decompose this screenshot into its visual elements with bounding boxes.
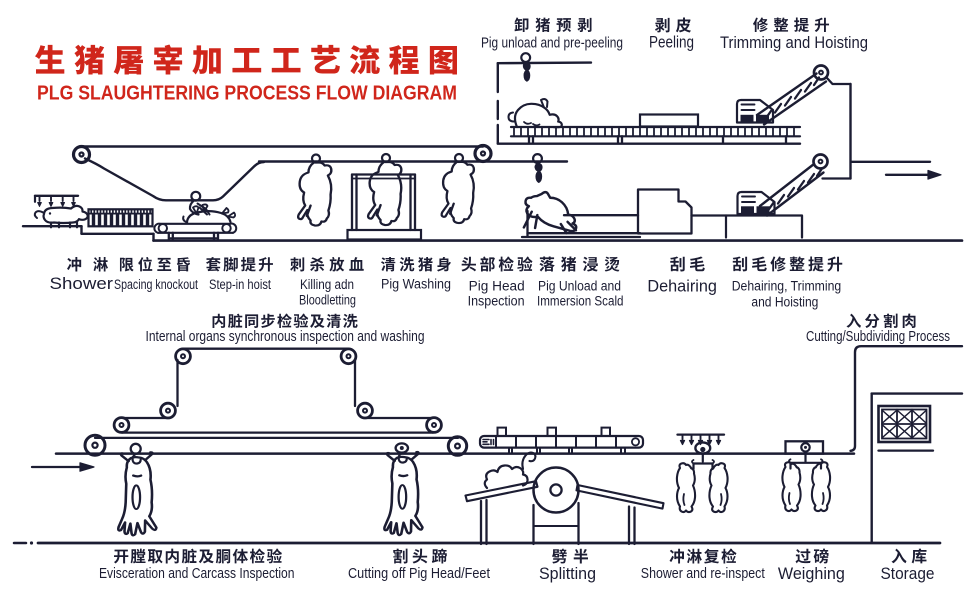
svg-text:Pig Washing: Pig Washing [381,277,451,292]
svg-text:Immersion Scald: Immersion Scald [537,294,624,309]
svg-text:Step-in hoist: Step-in hoist [209,277,271,292]
svg-text:Storage: Storage [881,565,935,583]
svg-text:Killing adn: Killing adn [300,277,354,292]
svg-text:Weighing: Weighing [778,565,845,583]
svg-text:Dehairing, Trimming: Dehairing, Trimming [732,279,842,294]
svg-text:Bloodletting: Bloodletting [299,293,356,308]
svg-text:Peeling: Peeling [649,33,694,52]
svg-text:Pig unload and pre-peeling: Pig unload and pre-peeling [481,35,623,52]
svg-text:Pig Unload and: Pig Unload and [538,279,621,294]
svg-text:Inspection: Inspection [468,294,525,309]
svg-text:Internal organs synchronous in: Internal organs synchronous inspection a… [146,329,425,345]
svg-text:and Hoisting: and Hoisting [751,295,818,310]
svg-text:Cutting/Subdividing Process: Cutting/Subdividing Process [806,329,950,345]
svg-text:PLG SLAUGHTERING PROCESS FLOW: PLG SLAUGHTERING PROCESS FLOW DIAGRAM [37,83,457,105]
svg-text:Cutting off Pig Head/Feet: Cutting off Pig Head/Feet [348,566,490,582]
svg-text:Pig Head: Pig Head [469,279,525,294]
svg-text:Shower and re-inspect: Shower and re-inspect [641,566,765,582]
svg-text:Trimming and Hoisting: Trimming and Hoisting [720,33,868,52]
svg-text:Spacing knockout: Spacing knockout [114,277,198,292]
svg-text:Shower: Shower [50,275,114,293]
svg-text:Evisceration and Carcass Inspe: Evisceration and Carcass Inspection [99,566,295,582]
svg-text:Dehairing: Dehairing [647,278,717,296]
svg-text:Splitting: Splitting [539,565,596,583]
